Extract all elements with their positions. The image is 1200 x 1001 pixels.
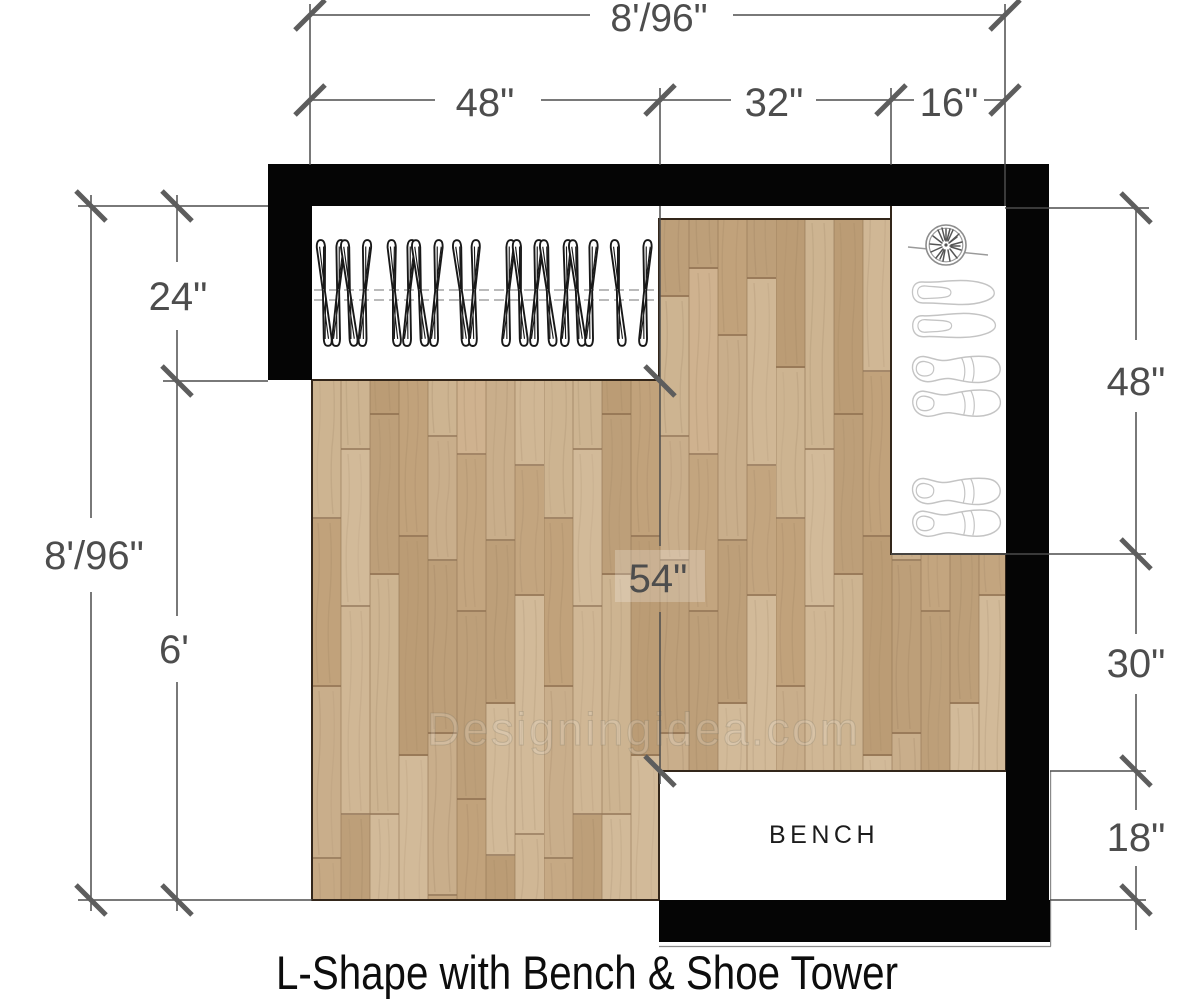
svg-text:18": 18" [1107,816,1166,860]
svg-text:Designingidea.com: Designingidea.com [427,703,861,755]
svg-text:48": 48" [456,81,515,125]
svg-text:48": 48" [1107,360,1166,404]
svg-text:6': 6' [159,628,189,672]
svg-text:54": 54" [629,557,688,601]
svg-text:8'/96": 8'/96" [44,534,144,578]
svg-text:16": 16" [920,81,979,125]
svg-text:32": 32" [745,81,804,125]
svg-text:BENCH: BENCH [769,821,879,849]
svg-text:8'/96": 8'/96" [610,0,707,40]
svg-text:L-Shape with Bench & Shoe Towe: L-Shape with Bench & Shoe Tower [276,946,898,999]
svg-text:30": 30" [1107,642,1166,686]
svg-text:24": 24" [149,275,208,319]
